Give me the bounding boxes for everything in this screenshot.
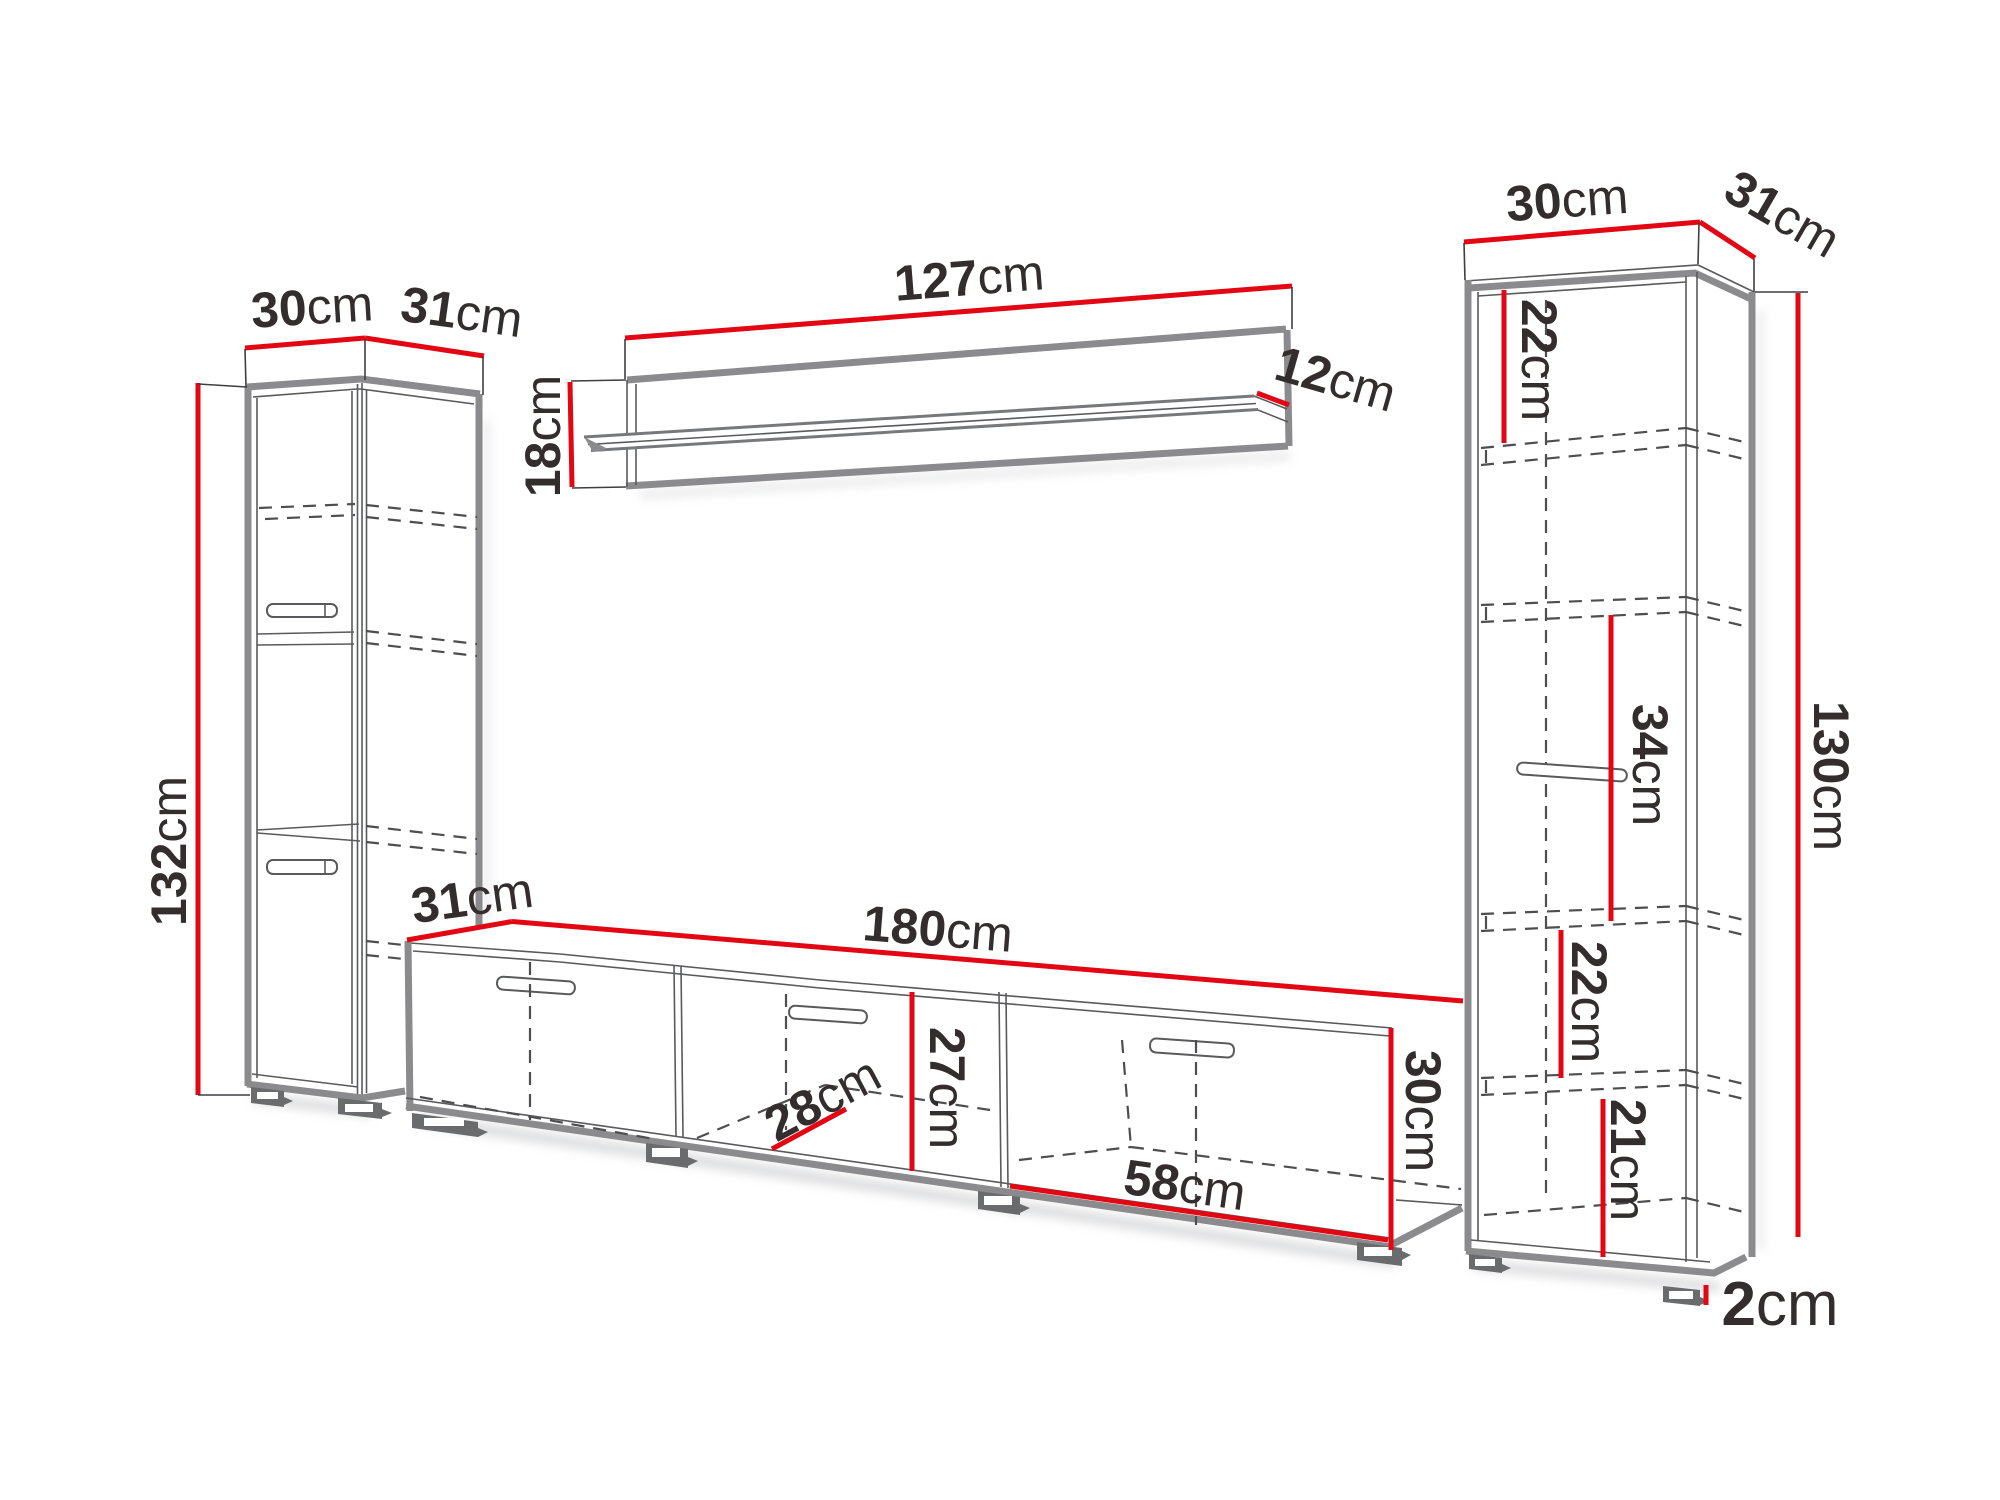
svg-text:27cm: 27cm (919, 1027, 975, 1149)
svg-text:22cm: 22cm (1561, 941, 1617, 1063)
svg-text:30cm: 30cm (1395, 1050, 1451, 1172)
svg-text:30cm: 30cm (1504, 168, 1630, 232)
svg-text:21cm: 21cm (1600, 1099, 1656, 1221)
svg-text:132cm: 132cm (141, 776, 197, 926)
svg-text:2cm: 2cm (1721, 1270, 1838, 1339)
svg-text:34cm: 34cm (1622, 704, 1678, 826)
svg-text:30cm: 30cm (249, 275, 374, 338)
svg-text:127cm: 127cm (892, 244, 1046, 312)
svg-text:18cm: 18cm (515, 375, 571, 497)
svg-text:22cm: 22cm (1511, 299, 1567, 421)
svg-text:180cm: 180cm (861, 895, 1015, 963)
svg-text:130cm: 130cm (1803, 701, 1859, 851)
